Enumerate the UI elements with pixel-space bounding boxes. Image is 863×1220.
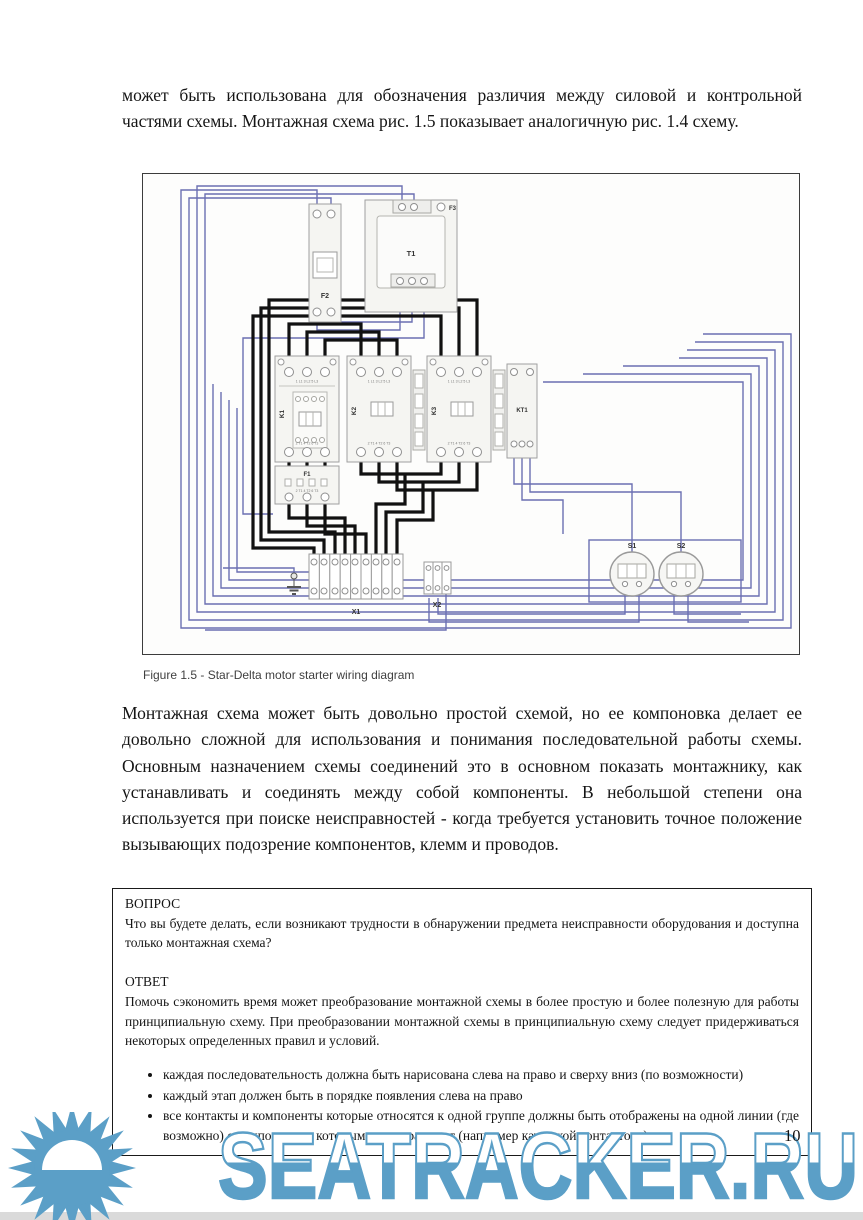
answer-label: ОТВЕТ [125,972,799,992]
label-kt1: KT1 [516,408,528,414]
component-k1: 1 L1 3 L2 5 L3 K1 2 T1 4 T2 6 T3 [275,356,339,462]
figure-caption: Figure 1.5 - Star-Delta motor starter wi… [143,668,414,682]
label-s1: S1 [628,543,637,550]
question-label: ВОПРОС [125,894,799,914]
component-kt1: KT1 [507,364,537,458]
label-k3: K3 [431,406,438,415]
wiring-diagram-svg: F2 F3 T1 [143,174,799,654]
label-k2: K2 [351,406,358,415]
component-k3: 1 L1 3 L2 5 L3 K3 2 T1 4 T2 6 T3 [427,356,505,462]
label-x1: X1 [352,609,361,616]
bullet-item: каждый этап должен быть в порядке появле… [163,1086,799,1106]
k1-bottom-terminal-labels: 2 T1 4 T2 6 T3 [296,442,319,446]
component-t1: F3 T1 [365,200,457,312]
question-text: Что вы будете делать, если возникают тру… [125,914,799,953]
component-f2: F2 [309,204,341,322]
label-k1: K1 [279,409,286,418]
k3-top-terminal-labels: 1 L1 3 L2 5 L3 [448,380,470,384]
ground-symbol-icon [287,573,301,594]
wiring-diagram-figure: F2 F3 T1 [142,173,800,655]
question-answer-box: ВОПРОС Что вы будете делать, если возник… [112,888,812,1156]
page-number: 10 [784,1126,801,1146]
label-s2: S2 [677,543,686,550]
f1-terminal-labels: 2 T1 4 T2 6 T3 [296,489,319,493]
page-bottom-edge [0,1212,863,1220]
label-f3: F3 [449,206,457,212]
component-f1: F1 2 T1 4 T2 6 T3 [275,466,339,504]
k2-bottom-terminal-labels: 2 T1 4 T2 6 T3 [368,442,391,446]
paragraph-top: может быть использована для обозначения … [122,82,802,135]
bullet-item: все контакты и компоненты которые относя… [163,1106,799,1145]
label-f2: F2 [321,293,329,300]
paragraph-middle: Монтажная схема может быть довольно прос… [122,700,802,858]
k3-bottom-terminal-labels: 2 T1 4 T2 6 T3 [448,442,471,446]
document-page: может быть использована для обозначения … [0,0,863,1220]
label-f1: F1 [303,472,311,478]
spacer [125,953,799,972]
answer-text: Помочь сэкономить время может преобразов… [125,992,799,1051]
component-x2: X2 [424,562,451,609]
k1-top-terminal-labels: 1 L1 3 L2 5 L3 [296,380,318,384]
k2-top-terminal-labels: 1 L1 3 L2 5 L3 [368,380,390,384]
component-x1: X1 [309,554,403,616]
label-x2: X2 [433,602,442,609]
bullet-item: каждая последовательность должна быть на… [163,1065,799,1085]
component-k2: 1 L1 3 L2 5 L3 K2 2 T1 4 T2 6 T3 [347,356,425,462]
rules-bullet-list: каждая последовательность должна быть на… [125,1065,799,1146]
label-t1: T1 [407,249,416,258]
